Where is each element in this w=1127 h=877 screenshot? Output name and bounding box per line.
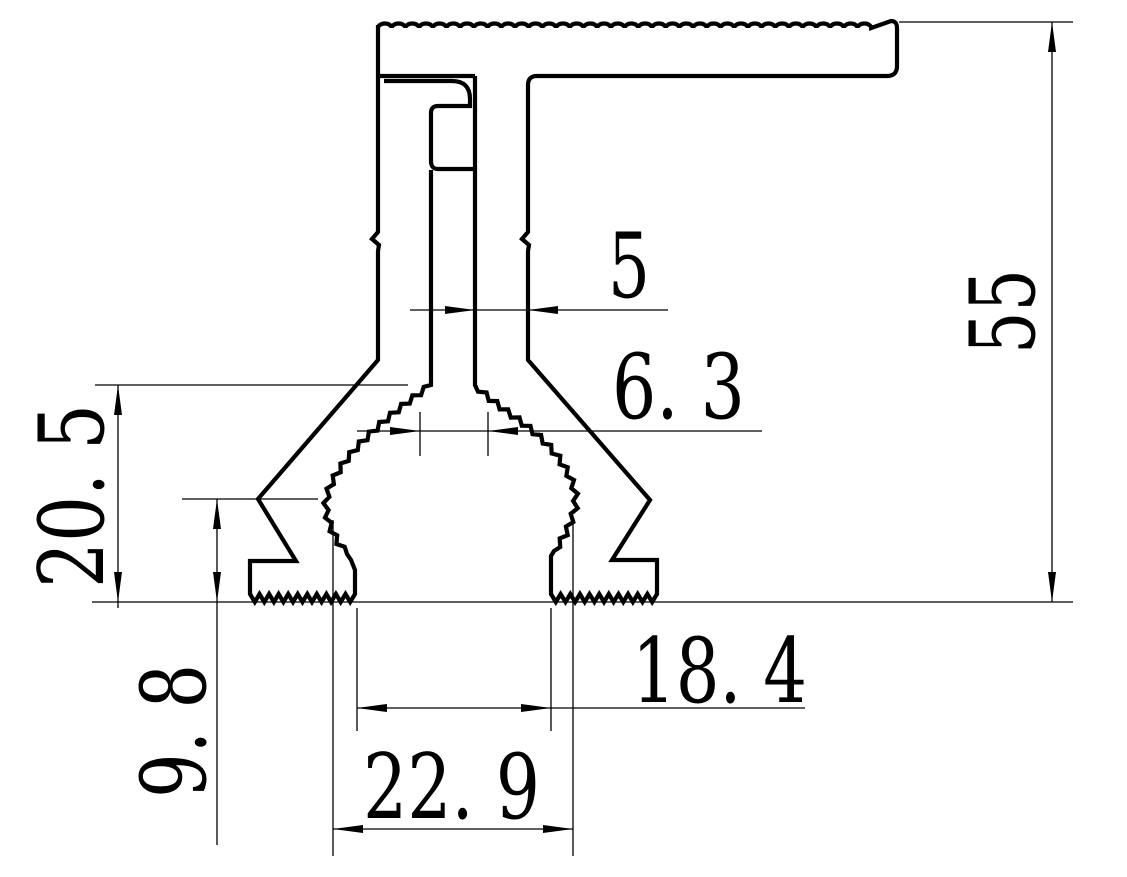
dim-label-overall-height: 55 [951, 269, 1056, 354]
dimension-arrow [488, 427, 518, 435]
dimension-arrow [390, 427, 420, 435]
dimension-arrow [1048, 572, 1056, 602]
dim-label-foot-height: 9. 8 [122, 664, 227, 798]
drawing-canvas: 5 6. 3 18. 4 22. 9 55 20. 5 9. 8 [0, 0, 1127, 877]
dimension-arrow [213, 499, 221, 529]
dimension-arrow [357, 704, 387, 712]
dim-label-waist-width: 6. 3 [612, 335, 745, 440]
dimension-arrow [1048, 22, 1056, 52]
dimension-arrow [528, 306, 558, 314]
dimension-geometry [92, 22, 1073, 856]
dimension-arrow [445, 306, 475, 314]
dim-label-feet-inner-span: 18. 4 [632, 619, 807, 724]
hook-cavity [384, 81, 473, 169]
dimension-arrow [521, 704, 551, 712]
dimension-arrow [333, 825, 363, 833]
technical-drawing: 5 6. 3 18. 4 22. 9 55 20. 5 9. 8 [0, 0, 1127, 877]
dim-label-clamp-height: 20. 5 [20, 404, 125, 588]
dim-label-base-width: 22. 9 [363, 735, 540, 840]
profile-geometry [250, 21, 897, 602]
profile-left-outline [250, 25, 431, 602]
dimension-arrow [213, 572, 221, 602]
dim-label-stem-width: 5 [608, 214, 650, 319]
dimension-arrow [543, 825, 573, 833]
